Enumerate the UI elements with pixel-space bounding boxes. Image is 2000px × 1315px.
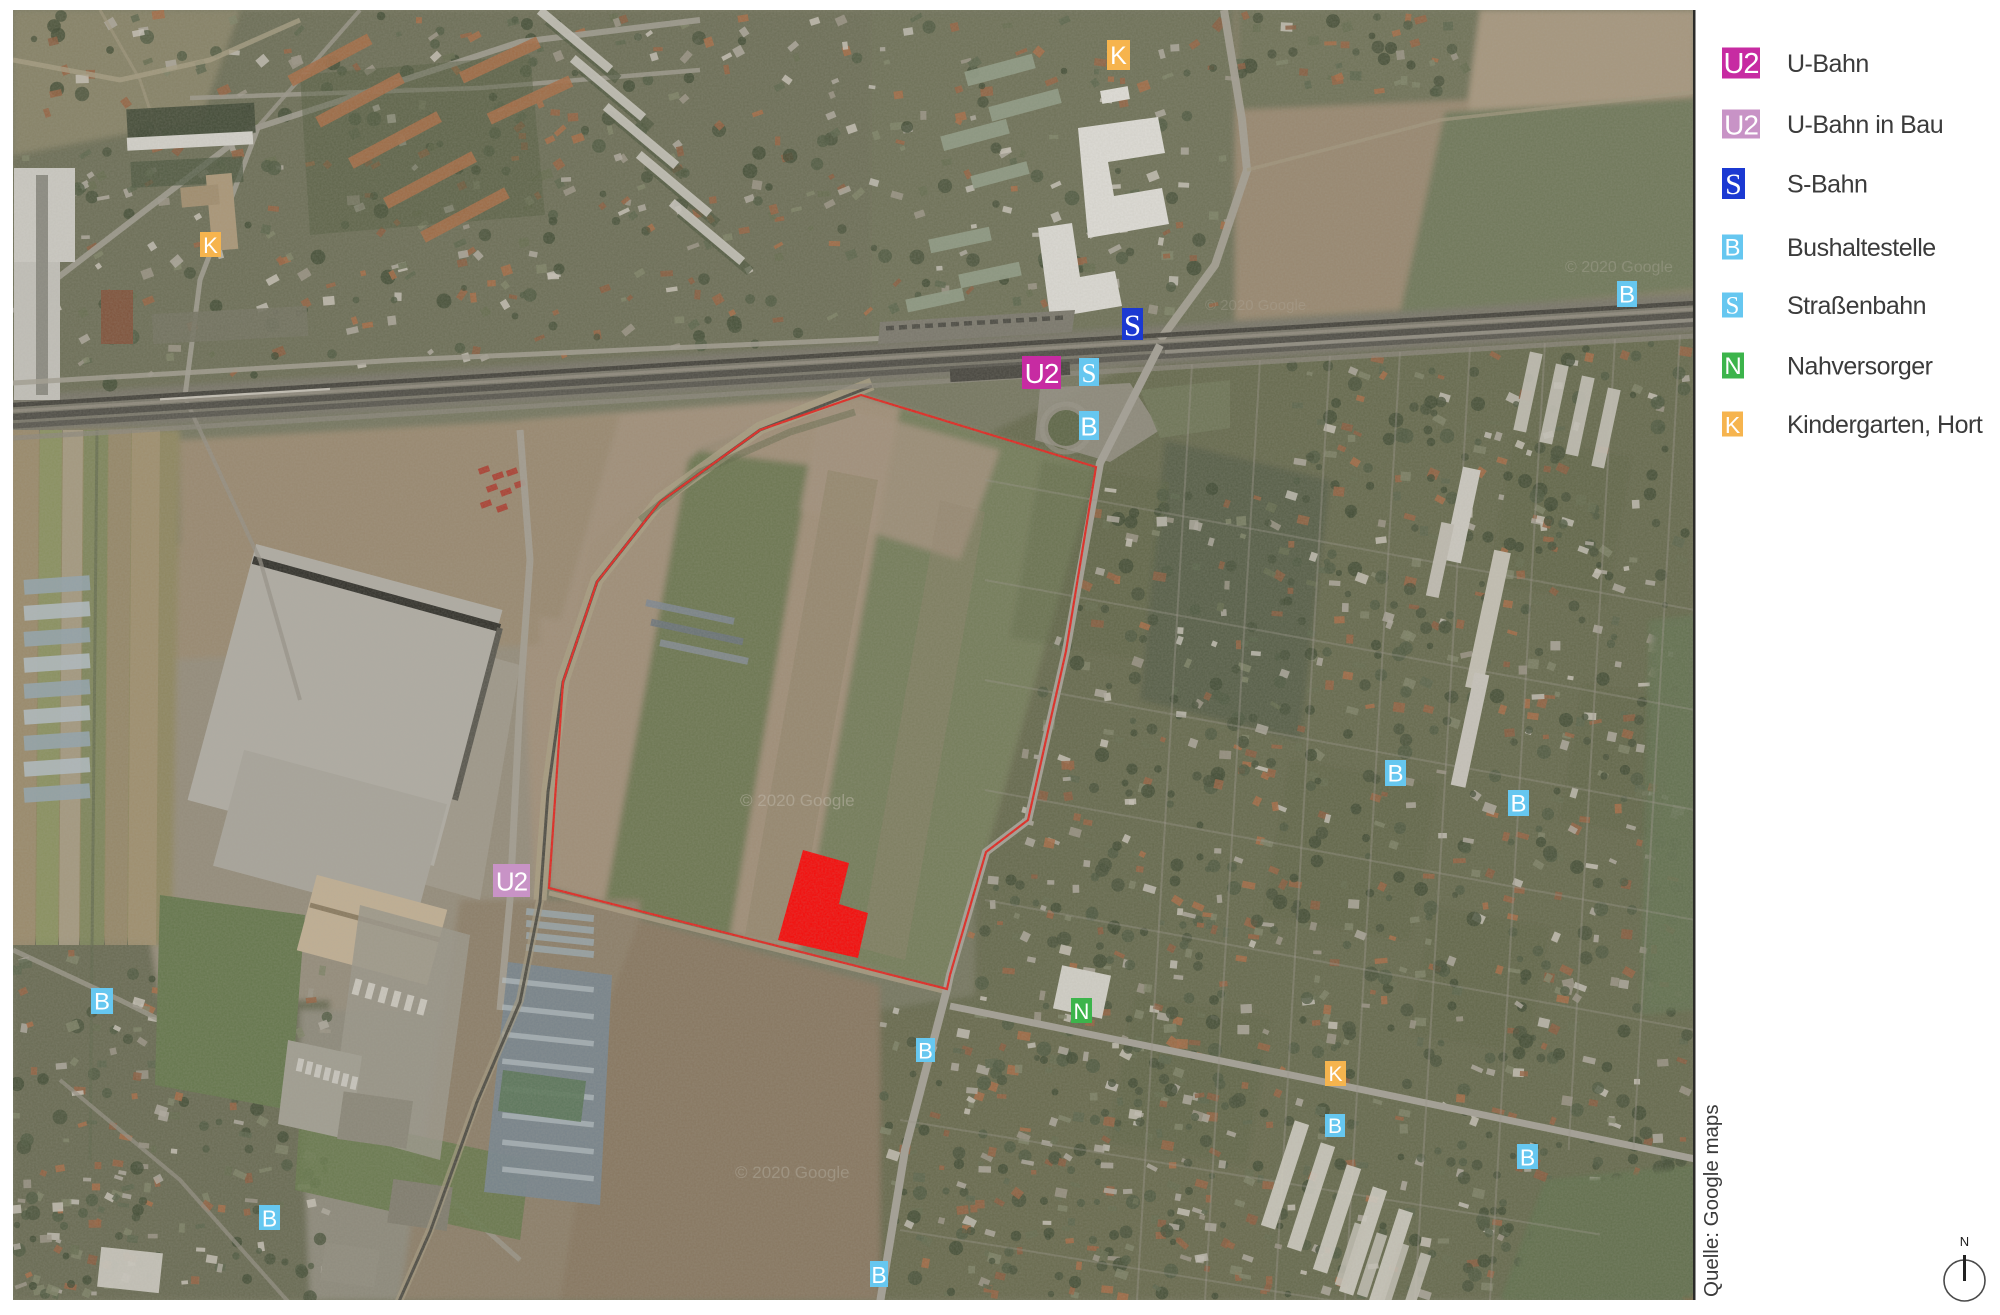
svg-text:N: N xyxy=(1074,999,1090,1024)
svg-text:S: S xyxy=(1081,358,1096,388)
svg-text:N: N xyxy=(1960,1234,1969,1249)
svg-text:B: B xyxy=(1724,235,1740,262)
svg-text:B: B xyxy=(262,1206,277,1232)
svg-text:B: B xyxy=(1520,1145,1535,1171)
svg-text:U2: U2 xyxy=(1723,48,1758,80)
svg-text:B: B xyxy=(918,1039,933,1064)
svg-text:B: B xyxy=(1619,282,1635,309)
svg-text:U-Bahn: U-Bahn xyxy=(1787,50,1869,78)
svg-text:Quelle: Google maps: Quelle: Google maps xyxy=(1700,1104,1723,1297)
svg-text:K: K xyxy=(203,233,218,258)
svg-text:S-Bahn: S-Bahn xyxy=(1787,171,1867,199)
svg-text:Kindergarten, Hort: Kindergarten, Hort xyxy=(1787,411,1983,439)
svg-text:U2: U2 xyxy=(1724,110,1758,141)
svg-text:K: K xyxy=(1110,42,1127,70)
svg-text:N: N xyxy=(1724,353,1741,380)
svg-text:B: B xyxy=(94,989,110,1016)
svg-text:B: B xyxy=(1328,1115,1342,1138)
svg-text:S: S xyxy=(1725,168,1742,201)
svg-text:U2: U2 xyxy=(1025,358,1059,389)
svg-text:B: B xyxy=(871,1262,886,1288)
svg-text:U2: U2 xyxy=(496,867,528,897)
svg-text:K: K xyxy=(1725,412,1741,438)
svg-text:B: B xyxy=(1387,761,1403,788)
svg-text:S: S xyxy=(1726,293,1740,320)
svg-text:U-Bahn in Bau: U-Bahn in Bau xyxy=(1787,111,1943,139)
svg-text:Nahversorger: Nahversorger xyxy=(1787,353,1933,381)
svg-text:S: S xyxy=(1124,308,1141,343)
svg-text:Bushaltestelle: Bushaltestelle xyxy=(1787,234,1936,262)
svg-text:K: K xyxy=(1328,1063,1342,1086)
svg-text:Straßenbahn: Straßenbahn xyxy=(1787,292,1926,320)
svg-text:B: B xyxy=(1080,412,1097,442)
svg-text:B: B xyxy=(1510,791,1526,818)
